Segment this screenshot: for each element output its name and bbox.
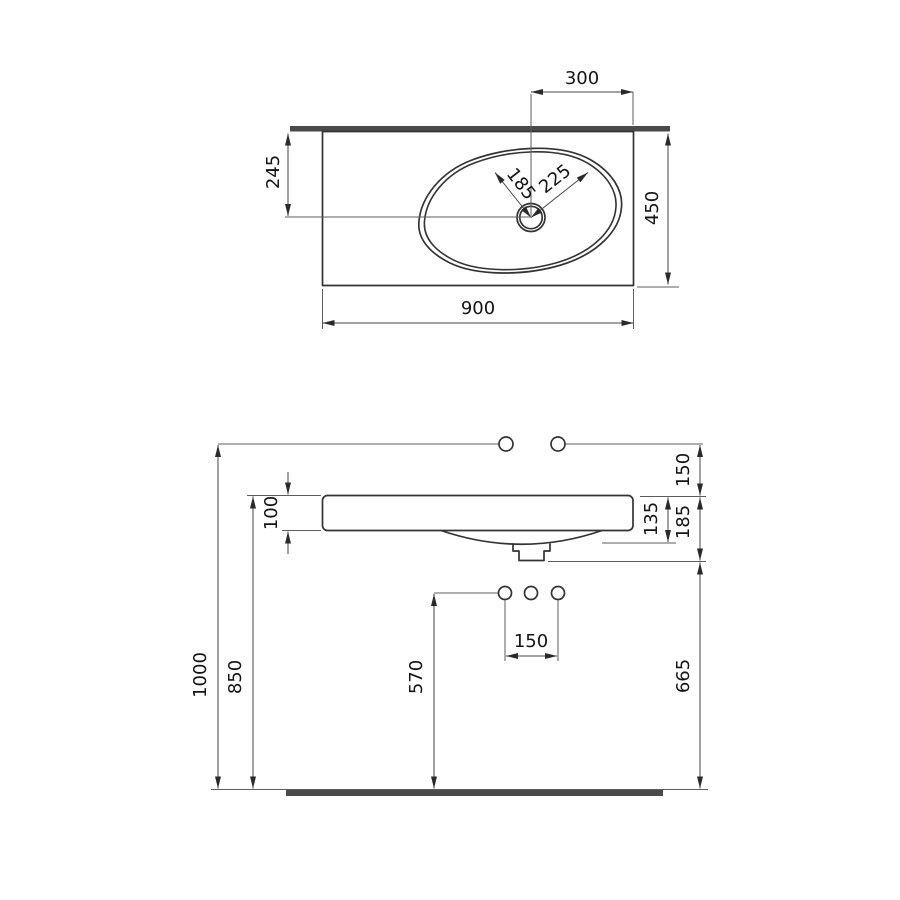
front-view-basin-slab (323, 496, 634, 531)
dim-label-300: 300 (565, 68, 599, 89)
top-view: 300 245 185 225 450 900 (263, 68, 679, 329)
bowl-underside-arc (441, 531, 602, 545)
drain-fitting (513, 544, 550, 561)
dim-label-900: 900 (461, 298, 495, 319)
dim-label-225: 225 (535, 160, 575, 198)
dim-label-150-above-rim: 150 (673, 453, 694, 487)
front-view: 100 1000 850 570 150 135 150 185 (190, 437, 708, 796)
dim-label-245: 245 (263, 155, 284, 189)
dim-label-850: 850 (225, 660, 246, 694)
supply-connection-circle-left (499, 437, 513, 451)
top-view-basin-outline (323, 132, 634, 286)
dim-label-185: 185 (502, 164, 540, 204)
washbasin-technical-drawing: 300 245 185 225 450 900 (0, 0, 900, 900)
dim-label-665: 665 (673, 659, 694, 693)
trap-connection-circle-right (552, 587, 565, 600)
dim-label-570: 570 (406, 660, 427, 694)
drawing-canvas: 300 245 185 225 450 900 (0, 0, 900, 900)
dim-label-135: 135 (641, 502, 662, 536)
supply-connection-circle-right (551, 437, 565, 451)
dim-label-185-projection: 185 (673, 505, 694, 539)
dim-label-100: 100 (261, 496, 282, 530)
trap-connection-circle-middle (525, 587, 538, 600)
trap-connection-circle-left (499, 587, 512, 600)
dim-label-150-spacing: 150 (514, 631, 548, 652)
dim-label-1000: 1000 (190, 652, 211, 698)
dim-label-450: 450 (642, 191, 663, 225)
floor-bar (286, 790, 663, 796)
